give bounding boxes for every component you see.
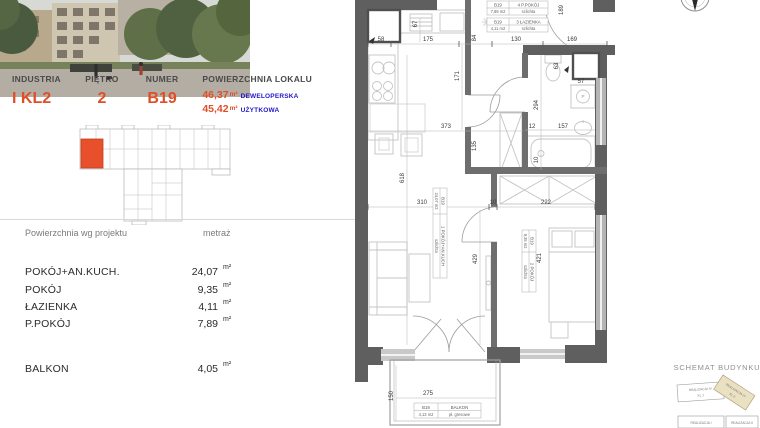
row-unit: m² bbox=[223, 316, 231, 323]
svg-text:BALKON: BALKON bbox=[451, 405, 468, 410]
svg-text:57: 57 bbox=[578, 79, 585, 85]
row-name-lazienka: ŁAZIENKA bbox=[25, 301, 77, 313]
building-floor-overview bbox=[62, 125, 252, 225]
svg-text:9,35 m2: 9,35 m2 bbox=[523, 234, 528, 250]
floor-label: PIĘTRO bbox=[82, 74, 122, 84]
svg-text:KL 1: KL 1 bbox=[697, 393, 704, 397]
table-col-metraz: metraż bbox=[203, 228, 231, 238]
unit-area-label: POWIERZCHNIA LOKALU bbox=[202, 74, 338, 84]
row-unit: m² bbox=[223, 282, 231, 289]
svg-text:429: 429 bbox=[473, 253, 479, 264]
developer-area: 46,37m²DEWELOPERSKA bbox=[202, 90, 338, 101]
schema-block-kl2-highlighted: REALIZACJA IV KL 2 bbox=[714, 375, 755, 410]
svg-text:B19: B19 bbox=[441, 197, 446, 205]
sofa bbox=[369, 242, 407, 315]
row-value-pokoj: 9,35 bbox=[138, 284, 218, 296]
row-name-pokoj: POKÓJ bbox=[25, 284, 62, 296]
unit-number-label: NUMER bbox=[136, 74, 188, 84]
unit-spec-header: INDUSTRIA I KL2 PIĘTRO 2 NUMER B19 POWIE… bbox=[12, 74, 352, 122]
floor-value: 2 bbox=[82, 90, 122, 108]
svg-text:B19: B19 bbox=[494, 2, 502, 7]
svg-text:B19: B19 bbox=[494, 19, 502, 24]
svg-text:24,07 m2: 24,07 m2 bbox=[434, 192, 439, 210]
svg-text:222: 222 bbox=[541, 200, 552, 206]
row-unit: m² bbox=[223, 299, 231, 306]
row-value-balkon: 4,05 bbox=[138, 363, 218, 375]
dimension-labels: 58 175 84 130 169 189 67 171 373 135 618… bbox=[378, 4, 585, 401]
svg-text:REALIZACJA II: REALIZACJA II bbox=[731, 421, 753, 425]
apartment-card-page: INDUSTRIA I KL2 PIĘTRO 2 NUMER B19 POWIE… bbox=[0, 0, 760, 428]
row-name-balkon: BALKON bbox=[25, 363, 69, 375]
svg-text:189: 189 bbox=[559, 4, 565, 15]
svg-text:2 POKÓJ: 2 POKÓJ bbox=[530, 263, 535, 281]
svg-text:294: 294 bbox=[534, 99, 540, 110]
svg-text:szlichta: szlichta bbox=[522, 9, 536, 14]
svg-text:4,11 m2: 4,11 m2 bbox=[491, 26, 506, 31]
room-label-pokoj: B19 2 POKÓJ 9,35 m2 szlichta bbox=[522, 230, 536, 292]
row-value-salon: 24,07 bbox=[138, 266, 218, 278]
compass-icon bbox=[681, 0, 709, 11]
bathtub bbox=[527, 136, 595, 171]
industria-value: I KL2 bbox=[12, 90, 68, 108]
svg-text:58: 58 bbox=[378, 37, 385, 43]
hall-wardrobe bbox=[500, 113, 522, 173]
shaft-bathroom bbox=[573, 53, 599, 79]
svg-text:84: 84 bbox=[472, 34, 478, 41]
svg-text:szlichta: szlichta bbox=[523, 265, 528, 279]
svg-text:175: 175 bbox=[423, 37, 434, 43]
svg-text:373: 373 bbox=[441, 124, 452, 130]
svg-text:7,89 m2: 7,89 m2 bbox=[491, 9, 507, 14]
door-swings bbox=[413, 3, 597, 352]
svg-text:150: 150 bbox=[389, 390, 395, 401]
svg-text:63: 63 bbox=[554, 62, 560, 69]
svg-text:szlichta: szlichta bbox=[434, 239, 439, 253]
row-name-salon: POKÓJ+AN.KUCH. bbox=[25, 266, 120, 278]
svg-text:275: 275 bbox=[423, 391, 434, 397]
panel-divider bbox=[0, 219, 355, 220]
svg-text:10: 10 bbox=[534, 156, 540, 163]
table-col-project: Powierzchnia wg projektu bbox=[25, 228, 127, 238]
svg-text:4 P.POKÓJ: 4 P.POKÓJ bbox=[518, 2, 540, 7]
svg-text:pł. gresowe: pł. gresowe bbox=[449, 412, 471, 417]
svg-text:4,13 m2: 4,13 m2 bbox=[419, 412, 435, 417]
washer-symbol: P bbox=[581, 94, 584, 99]
svg-text:157: 157 bbox=[558, 124, 569, 130]
svg-text:171: 171 bbox=[455, 70, 461, 81]
svg-text:618: 618 bbox=[400, 172, 406, 183]
tv-cabinet bbox=[409, 254, 430, 302]
row-value-lazienka: 4,11 bbox=[138, 301, 218, 313]
svg-text:3 ŁAZIENKA: 3 ŁAZIENKA bbox=[516, 19, 540, 24]
unit-number-value: B19 bbox=[136, 90, 188, 108]
svg-text:B19: B19 bbox=[530, 237, 535, 245]
apartment-floor-plan: 58 175 84 130 169 189 67 171 373 135 618… bbox=[355, 0, 760, 428]
bath-sink bbox=[575, 120, 592, 135]
selected-unit-highlight bbox=[81, 139, 103, 168]
bed bbox=[549, 228, 597, 322]
industria-label: INDUSTRIA bbox=[12, 74, 68, 84]
building-schema-title: SCHEMAT BUDYNKU bbox=[674, 363, 760, 372]
svg-text:135: 135 bbox=[472, 140, 478, 151]
svg-text:310: 310 bbox=[417, 200, 428, 206]
svg-text:67: 67 bbox=[413, 20, 419, 27]
room-label-balkon: B19 BALKON 4,13 m2 pł. gresowe bbox=[414, 403, 481, 418]
building-schema: SCHEMAT BUDYNKU REALIZACJA IV KL 1 REALI… bbox=[674, 363, 760, 428]
row-value-ppokoj: 7,89 bbox=[138, 318, 218, 330]
room-label-ppokoj: B19 4 P.POKÓJ 7,89 m2 szlichta bbox=[487, 1, 548, 15]
svg-text:1 POKÓJ+AN.KUCH: 1 POKÓJ+AN.KUCH bbox=[441, 226, 446, 266]
svg-text:B19: B19 bbox=[422, 405, 430, 410]
usable-area: 45,42m²UŻYTKOWA bbox=[202, 104, 338, 115]
schema-block-r2: REALIZACJA II bbox=[726, 416, 758, 428]
schema-block-r1: REALIZACJA I bbox=[678, 416, 724, 428]
nightstand bbox=[551, 322, 568, 338]
svg-text:10: 10 bbox=[490, 200, 497, 206]
svg-text:12: 12 bbox=[529, 124, 536, 130]
svg-text:szlichta: szlichta bbox=[522, 26, 536, 31]
row-unit: m² bbox=[223, 361, 231, 368]
room-label-lazienka: B19 3 ŁAZIENKA 4,11 m2 szlichta bbox=[487, 18, 548, 32]
svg-text:REALIZACJA I: REALIZACJA I bbox=[691, 421, 712, 425]
svg-text:169: 169 bbox=[567, 37, 578, 43]
room-label-salon: B19 1 POKÓJ+AN.KUCH 24,07 m2 szlichta bbox=[433, 188, 447, 278]
row-name-ppokoj: P.POKÓJ bbox=[25, 318, 71, 330]
svg-text:130: 130 bbox=[511, 37, 522, 43]
svg-text:421: 421 bbox=[537, 252, 543, 263]
row-unit: m² bbox=[223, 264, 231, 271]
